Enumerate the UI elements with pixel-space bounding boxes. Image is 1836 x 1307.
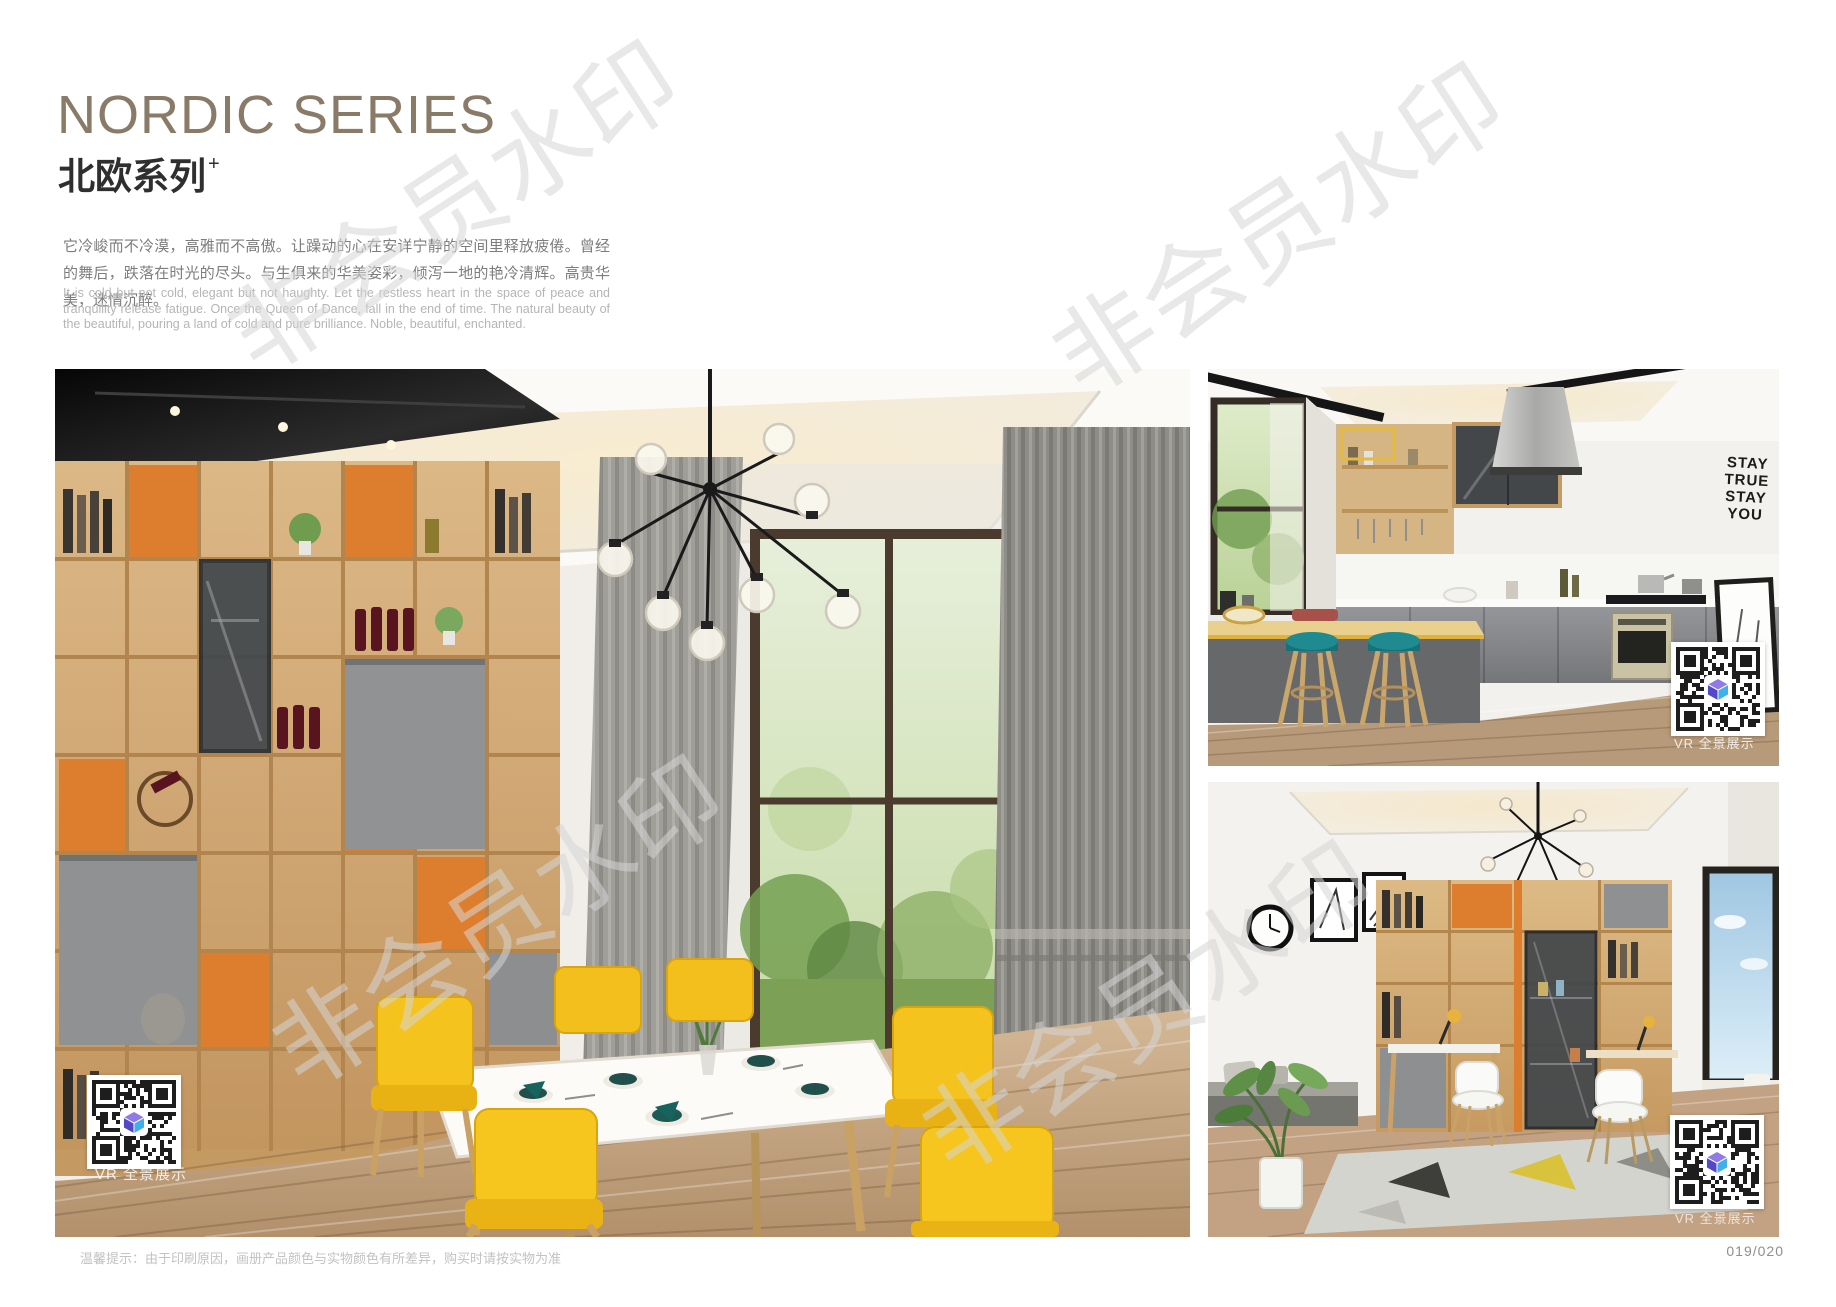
page-subtitle: 北欧系列+	[58, 146, 218, 200]
description-english: It is cold but not cold, elegant but not…	[63, 286, 610, 333]
footer-note: 温馨提示：由于印刷原因，画册产品颜色与实物颜色有所差异，购买时请按实物为准	[80, 1248, 561, 1267]
page-title: NORDIC SERIES	[57, 84, 496, 146]
qr-code	[1670, 1115, 1764, 1209]
ceiling	[1290, 788, 1688, 834]
subtitle-plus: +	[208, 153, 220, 175]
wall-word: YOU	[1722, 505, 1768, 524]
wall-clock	[1249, 907, 1291, 949]
wall-decal-stay-true: STAY TRUE STAY YOU	[1722, 454, 1770, 524]
page-number: 019/020	[1726, 1243, 1784, 1259]
qr-code	[1671, 642, 1765, 736]
study-room-photo: VR 全景展示	[1208, 782, 1779, 1237]
vr-panorama-label: VR 全景展示	[1675, 1208, 1756, 1227]
qr-cube-logo	[120, 1108, 148, 1136]
qr-pattern	[92, 1080, 176, 1164]
qr-cube-logo	[1703, 1148, 1731, 1176]
kitchen-photo: STAY TRUE STAY YOU VR 全景展示	[1208, 369, 1779, 766]
qr-code	[87, 1075, 181, 1169]
glass-display	[201, 561, 269, 751]
glass-cabinet	[1526, 932, 1596, 1128]
watermark: 非会员水印	[1020, 21, 1531, 423]
subtitle-text: 北欧系列	[58, 156, 206, 197]
catalog-page: NORDIC SERIES 北欧系列+ 它冷峻而不冷漠，高雅而不高傲。让躁动的心…	[0, 0, 1836, 1307]
watermark: 非会员水印	[195, 0, 706, 401]
vr-panorama-label: VR 全景展示	[95, 1163, 187, 1184]
qr-pattern	[1676, 647, 1760, 731]
kitchen-island	[1208, 607, 1484, 723]
oven	[1612, 613, 1672, 679]
dining-room-scene	[55, 369, 1190, 1237]
window	[1212, 401, 1306, 613]
vr-panorama-label: VR 全景展示	[1674, 733, 1755, 752]
dining-room-photo: VR 全景展示	[55, 369, 1190, 1237]
qr-pattern	[1675, 1120, 1759, 1204]
qr-cube-logo	[1704, 675, 1732, 703]
